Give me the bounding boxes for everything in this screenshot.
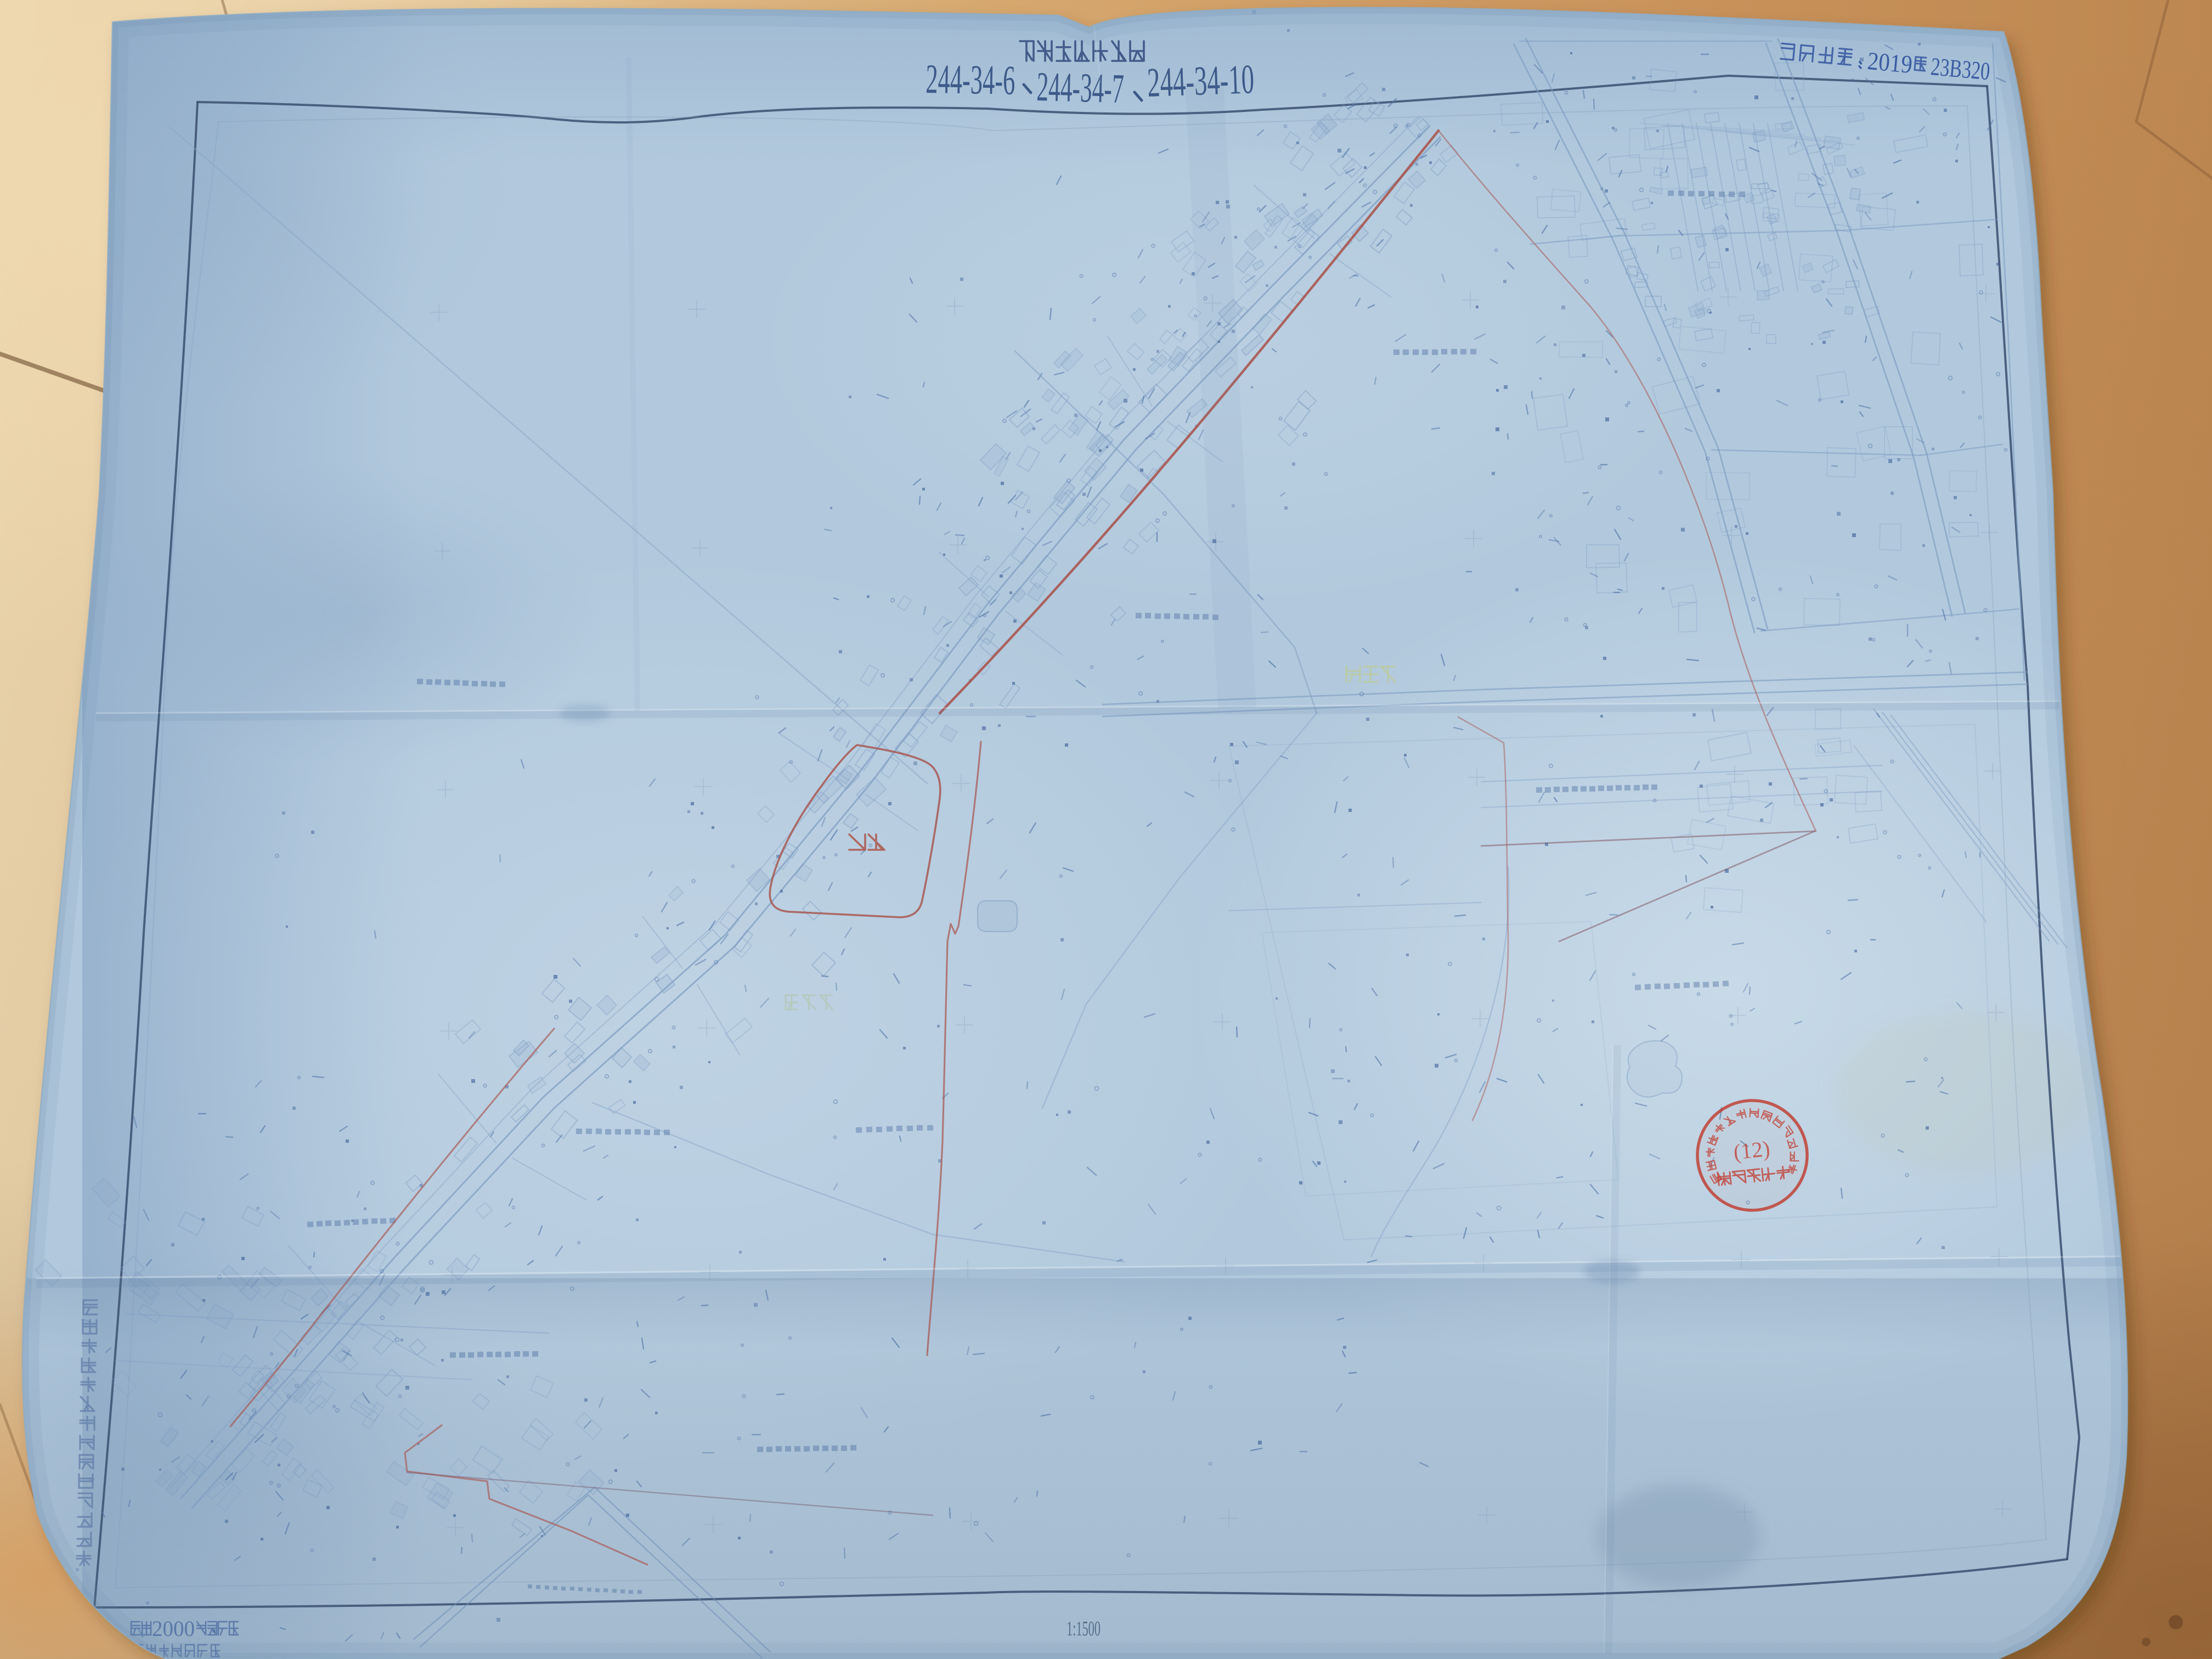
- svg-text:(12): (12): [1733, 1136, 1771, 1165]
- svg-text:244-34-7: 244-34-7: [1036, 64, 1125, 112]
- svg-text:2019: 2019: [1866, 47, 1914, 78]
- svg-text:244-34-6: 244-34-6: [926, 56, 1015, 104]
- svg-text:23B320: 23B320: [1929, 52, 1991, 85]
- svg-text:1:1500: 1:1500: [1066, 1617, 1101, 1640]
- svg-text:2000: 2000: [152, 1616, 195, 1641]
